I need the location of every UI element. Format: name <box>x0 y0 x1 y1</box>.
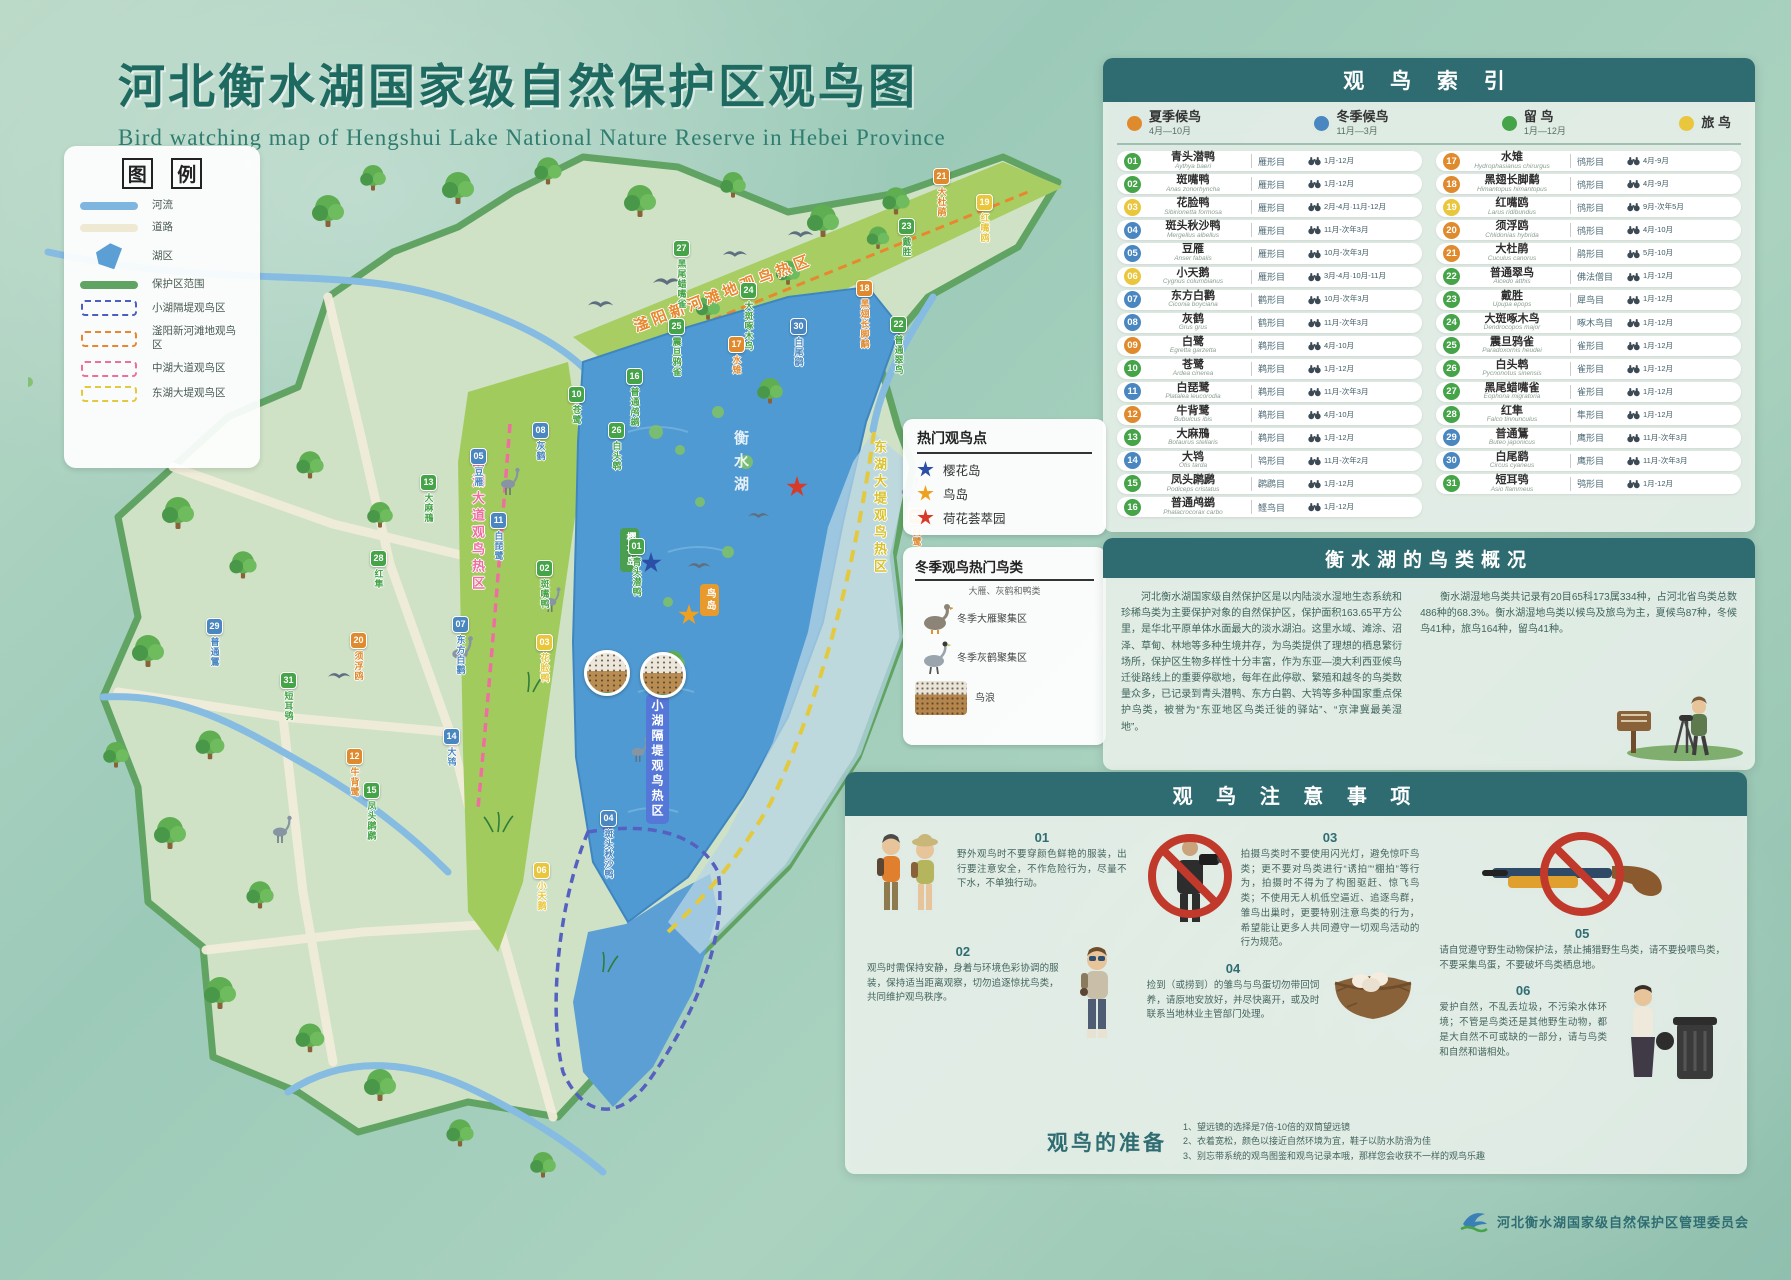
marker-number: 07 <box>452 616 469 633</box>
bird-months: 11月-次年3月 <box>1324 388 1368 396</box>
flock-photo-inset: 大雁 <box>584 650 630 696</box>
map-bird-marker: 15 凤头䴙䴘 <box>363 782 381 841</box>
binoculars-icon <box>1308 249 1321 259</box>
notes-column-1: 01 野外观鸟时不要穿颜色鲜艳的服装，出行要注意安全，不作危险行为，尽量不下水，… <box>867 830 1127 1112</box>
bird-months: 1月-12月 <box>1643 480 1673 488</box>
bird-order: 雁形目 <box>1258 270 1308 283</box>
bird-row: 29 普通鵟 Buteo japonicus 鹰形目 11月-次年3月 <box>1436 428 1741 448</box>
season-key-label: 旅 鸟 <box>1701 116 1731 130</box>
bird-number-badge: 18 <box>1443 176 1460 193</box>
bird-order: 䴙䴘目 <box>1258 477 1308 490</box>
marker-number: 18 <box>856 280 873 297</box>
binoculars-icon <box>1308 456 1321 466</box>
bird-latin: Alcedo atthis <box>1460 279 1564 286</box>
season-key: 冬季候鸟 11月—3月 <box>1314 110 1388 137</box>
bird-name: 短耳鸮 <box>1460 475 1564 487</box>
bird-months: 11月-次年3月 <box>1324 226 1368 234</box>
bird-order: 雁形目 <box>1258 247 1308 260</box>
season-key-dot <box>1127 116 1142 131</box>
bird-latin: Otis tarda <box>1141 463 1245 470</box>
map-bird-marker: 06 小天鹅 <box>533 862 551 911</box>
map-bird-marker: 31 短耳鸮 <box>280 672 298 721</box>
bird-order: 雀形目 <box>1577 362 1627 375</box>
legend-swatch <box>78 243 140 269</box>
marker-number: 26 <box>608 422 625 439</box>
marker-label: 红隼 <box>373 569 386 589</box>
legend-item-label: 中湖大道观鸟区 <box>152 362 226 375</box>
bird-latin: Grus grus <box>1141 325 1245 332</box>
bird-months: 1月-12月 <box>1643 365 1673 373</box>
legend-title-char: 例 <box>171 158 202 189</box>
overview-body: 河北衡水湖国家级自然保护区是以内陆淡水湿地生态系统和珍稀鸟类为主要保护对象的自然… <box>1103 578 1755 770</box>
litter-disposal-icon <box>1615 983 1725 1091</box>
marker-label: 戴胜 <box>901 237 914 257</box>
divider <box>1570 200 1571 214</box>
marker-number: 15 <box>363 782 380 799</box>
marker-label: 白琵鹭 <box>493 531 506 561</box>
marker-label: 小天鹅 <box>536 881 549 911</box>
bird-row: 18 黑翅长脚鹬 Himantopus himantopus 鸻形目 4月-9月 <box>1436 174 1741 194</box>
marker-label: 短耳鸮 <box>283 691 296 721</box>
legend-item: 道路 <box>78 221 246 234</box>
map-bird-marker: 23 戴胜 <box>898 218 916 257</box>
map-bird-marker: 04 斑头秋沙鸭 <box>600 810 618 879</box>
note-number: 05 <box>1439 926 1725 941</box>
bird-name-block: 斑头秋沙鸭 Mergellus albellus <box>1141 221 1245 239</box>
binoculars-icon <box>1627 318 1640 328</box>
map-bird-marker: 27 黑尾蜡嘴雀 <box>673 240 691 309</box>
bird-months: 1月-12月 <box>1324 180 1354 188</box>
bird-months: 1月-12月 <box>1643 388 1673 396</box>
bird-months: 9月-次年5月 <box>1643 203 1684 211</box>
bird-order: 雁形目 <box>1258 224 1308 237</box>
bird-row: 26 白头鹎 Pycnonotus sinensis 雀形目 1月-12月 <box>1436 359 1741 379</box>
org-logo <box>1459 1208 1489 1234</box>
bird-latin: Egretta garzetta <box>1141 348 1245 355</box>
binoculars-icon <box>1627 341 1640 351</box>
marker-label: 豆雁 <box>473 467 486 487</box>
bird-row: 05 豆雁 Anser fabalis 雁形目 10月-次年3月 <box>1117 243 1422 263</box>
winter-row: 冬季大雁聚集区 <box>915 603 1094 635</box>
divider <box>1570 362 1571 376</box>
bird-name-block: 红隼 Falco tinnunculus <box>1460 406 1564 424</box>
bird-latin: Paradoxornis heudei <box>1460 348 1564 355</box>
marker-label: 斑头秋沙鸭 <box>603 829 616 879</box>
bird-number-badge: 09 <box>1124 337 1141 354</box>
divider <box>1570 431 1571 445</box>
bird-row: 10 苍鹭 Ardea cinerea 鹈形目 1月-12月 <box>1117 359 1422 379</box>
bird-name-block: 白琵鹭 Platalea leucorodia <box>1141 383 1245 401</box>
hotspot-label: 樱花岛 <box>943 460 981 479</box>
bird-name-block: 青头潜鸭 Aythya baeri <box>1141 152 1245 170</box>
bird-order: 鸻形目 <box>1577 155 1627 168</box>
map-bird-marker: 30 白尾鹞 <box>790 318 808 367</box>
bird-row: 02 斑嘴鸭 Anas zonorhyncha 雁形目 1月-12月 <box>1117 174 1422 194</box>
winter-title: 冬季观鸟热门鸟类 <box>915 556 1094 581</box>
footer: 河北衡水湖国家级自然保护区管理委员会 <box>1459 1208 1749 1234</box>
poster: 河北衡水湖国家级自然保护区观鸟图 Bird watching map of He… <box>0 0 1791 1280</box>
note-item-06: 06 爱护自然，不乱丢垃圾，不污染水体环境；不管是鸟类还是其他野生动物，都是大自… <box>1439 983 1725 1091</box>
marker-label: 黑翅长脚鹬 <box>859 299 872 349</box>
bird-number-badge: 12 <box>1124 406 1141 423</box>
legend-item-label: 小湖隔堤观鸟区 <box>152 302 226 315</box>
bird-order: 鸮形目 <box>1577 477 1627 490</box>
note-number: 01 <box>957 830 1127 845</box>
note-item-02: 02 观鸟时需保持安静，身着与环境色彩协调的服装，保持适当距离观察，切勿追逐惊扰… <box>867 944 1127 1054</box>
bird-number-badge: 15 <box>1124 475 1141 492</box>
bird-months: 4月-9月 <box>1643 157 1669 165</box>
bird-name-block: 苍鹭 Ardea cinerea <box>1141 360 1245 378</box>
bird-name-block: 牛背鹭 Bubulcus ibis <box>1141 406 1245 424</box>
bird-order: 鹈形目 <box>1258 385 1308 398</box>
marker-label: 东方白鹳 <box>455 635 468 675</box>
bird-latin: Ardea cinerea <box>1141 371 1245 378</box>
birdwatcher-icon <box>1067 944 1127 1054</box>
marker-number: 02 <box>536 560 553 577</box>
bird-number-badge: 10 <box>1124 360 1141 377</box>
bird-latin: Cygnus columbianus <box>1141 279 1245 286</box>
divider <box>1570 408 1571 422</box>
page-title: 河北衡水湖国家级自然保护区观鸟图 <box>118 48 1018 117</box>
bird-number-badge: 02 <box>1124 176 1141 193</box>
map-bird-marker: 19 红嘴鸥 <box>976 194 994 243</box>
marker-label: 白尾鹞 <box>793 337 806 367</box>
season-key-dot <box>1314 116 1329 131</box>
bird-latin: Podiceps cristatus <box>1141 487 1245 494</box>
bird-latin: Eophona migratoria <box>1460 394 1564 401</box>
bird-number-badge: 20 <box>1443 222 1460 239</box>
bird-months: 4月-9月 <box>1643 180 1669 188</box>
bird-row: 25 震旦鸦雀 Paradoxornis heudei 雀形目 1月-12月 <box>1436 336 1741 356</box>
bird-months: 10月-次年3月 <box>1324 249 1369 257</box>
map-bird-marker: 05 豆雁 <box>470 448 488 487</box>
bird-number-badge: 31 <box>1443 475 1460 492</box>
bird-months: 11月-次年2月 <box>1324 457 1368 465</box>
note-number: 03 <box>1241 830 1420 845</box>
notes-column-3: 05 请自觉遵守野生动物保护法，禁止捕猎野生鸟类，请不要投喂鸟类，不要采集鸟蛋，… <box>1439 830 1725 1112</box>
divider <box>1251 385 1252 399</box>
notes-body: 01 野外观鸟时不要穿颜色鲜艳的服装，出行要注意安全，不作危险行为，尽量不下水，… <box>845 816 1747 1174</box>
bird-months: 1月-12月 <box>1643 411 1673 419</box>
bird-number-badge: 24 <box>1443 314 1460 331</box>
bird-row: 07 东方白鹳 Ciconia boyciana 鹳形目 10月-次年3月 <box>1117 290 1422 310</box>
divider <box>1570 223 1571 237</box>
marker-label: 牛背鹭 <box>349 767 362 797</box>
bird-row: 27 黑尾蜡嘴雀 Eophona migratoria 雀形目 1月-12月 <box>1436 382 1741 402</box>
winter-row: 冬季灰鹤聚集区 <box>915 641 1094 675</box>
bird-order: 佛法僧目 <box>1577 270 1627 283</box>
bird-months: 1月-12月 <box>1324 157 1354 165</box>
legend-swatch <box>78 361 140 377</box>
marker-label: 青头潜鸭 <box>631 557 644 597</box>
marker-number: 30 <box>790 318 807 335</box>
season-key: 旅 鸟 <box>1679 116 1731 131</box>
legend-item-label: 保护区范围 <box>152 278 205 291</box>
binoculars-icon <box>1308 225 1321 235</box>
marker-number: 11 <box>490 512 507 529</box>
bird-number-badge: 14 <box>1124 452 1141 469</box>
legend-item: 中湖大道观鸟区 <box>78 361 246 377</box>
binoculars-icon <box>1308 387 1321 397</box>
hotspot-row: 樱花岛 <box>917 460 1092 479</box>
bird-months: 2月-4月·11月-12月 <box>1324 203 1386 211</box>
marker-label: 普通鸬鹚 <box>629 387 642 427</box>
bird-number-badge: 30 <box>1443 452 1460 469</box>
marker-number: 04 <box>600 810 617 827</box>
bird-order: 鸻形目 <box>1577 224 1627 237</box>
bird-months: 1月-12月 <box>1324 434 1354 442</box>
prep-line: 3、别忘带系统的观鸟图鉴和观鸟记录本哦，那样您会收获不一样的观鸟乐趣 <box>1183 1149 1485 1163</box>
bird-row: 15 凤头䴙䴘 Podiceps cristatus 䴙䴘目 1月-12月 <box>1117 474 1422 494</box>
bird-row: 04 斑头秋沙鸭 Mergellus albellus 雁形目 11月-次年3月 <box>1117 220 1422 240</box>
bird-latin: Cuculus canorus <box>1460 256 1564 263</box>
prep-line: 1、望远镜的选择是7倍-10倍的双筒望远镜 <box>1183 1120 1485 1134</box>
bird-latin: Sibirionetta formosa <box>1141 210 1245 217</box>
bird-order: 鲣鸟目 <box>1258 501 1308 514</box>
bird-order: 雁形目 <box>1258 178 1308 191</box>
overview-panel: 衡水湖的鸟类概况 河北衡水湖国家级自然保护区是以内陆淡水湿地生态系统和珍稀鸟类为… <box>1103 538 1755 770</box>
org-name: 河北衡水湖国家级自然保护区管理委员会 <box>1497 1212 1749 1231</box>
map-bird-marker: 10 苍鹭 <box>568 386 586 425</box>
bird-name-block: 白头鹎 Pycnonotus sinensis <box>1460 360 1564 378</box>
bird-months: 11月-次年3月 <box>1643 434 1687 442</box>
bird-latin: Anas zonorhyncha <box>1141 187 1245 194</box>
bird-order: 鸻形目 <box>1577 201 1627 214</box>
divider <box>1251 293 1252 307</box>
bird-name-block: 大鸨 Otis tarda <box>1141 452 1245 470</box>
legend-box: 图 例 河流 道路 <box>64 146 260 468</box>
bird-latin: Buteo japonicus <box>1460 440 1564 447</box>
map-bird-marker: 26 白头鹎 <box>608 422 626 471</box>
map-bird-marker: 12 牛背鹭 <box>346 748 364 797</box>
bird-row: 16 普通鸬鹚 Phalacrocorax carbo 鲣鸟目 1月-12月 <box>1117 497 1422 517</box>
bird-months: 1月-12月 <box>1643 295 1673 303</box>
map-bird-marker: 14 大鸨 <box>443 728 461 767</box>
bird-name-block: 普通翠鸟 Alcedo atthis <box>1460 268 1564 286</box>
bird-row: 21 大杜鹃 Cuculus canorus 鹃形目 5月-10月 <box>1436 243 1741 263</box>
bird-number-badge: 01 <box>1124 153 1141 170</box>
bird-name-block: 普通鵟 Buteo japonicus <box>1460 429 1564 447</box>
bird-latin: Botaurus stellaris <box>1141 440 1245 447</box>
legend-title-char: 图 <box>122 158 153 189</box>
bird-months: 1月-12月 <box>1324 365 1354 373</box>
bird-latin: Falco tinnunculus <box>1460 417 1564 424</box>
legend-item-label: 道路 <box>152 221 173 234</box>
binoculars-icon <box>1308 295 1321 305</box>
legend-item: 小湖隔堤观鸟区 <box>78 300 246 316</box>
bird-name-block: 黑尾蜡嘴雀 Eophona migratoria <box>1460 383 1564 401</box>
marker-number: 28 <box>370 550 387 567</box>
divider <box>1251 177 1252 191</box>
bird-latin: Mergellus albellus <box>1141 233 1245 240</box>
note-text: 捡到（或捞到）的雏鸟与鸟蛋切勿带回饲养，请原地安放好，并尽快离开，或及时联系当地… <box>1147 979 1320 1023</box>
bird-months: 4月-10月 <box>1324 342 1354 350</box>
marker-number: 21 <box>933 168 950 185</box>
season-key-range: 11月—3月 <box>1336 124 1388 137</box>
season-key-label: 夏季候鸟 <box>1149 110 1201 124</box>
bird-latin: Asio flammeus <box>1460 487 1564 494</box>
bird-number-badge: 13 <box>1124 429 1141 446</box>
map-bird-marker: 21 大杜鹃 <box>933 168 951 217</box>
bird-latin: Platalea leucorodia <box>1141 394 1245 401</box>
marker-label: 大鸨 <box>446 747 459 767</box>
bird-name-block: 斑嘴鸭 Anas zonorhyncha <box>1141 175 1245 193</box>
marker-number: 13 <box>420 474 437 491</box>
binoculars-icon <box>1627 479 1640 489</box>
binoculars-icon <box>1627 272 1640 282</box>
bird-order: 鹈形目 <box>1258 339 1308 352</box>
hotspot-label: 荷花荟萃园 <box>943 508 1006 527</box>
bird-number-badge: 08 <box>1124 314 1141 331</box>
divider <box>1570 454 1571 468</box>
marker-number: 03 <box>536 634 553 651</box>
star-icon <box>917 461 934 478</box>
marker-number: 31 <box>280 672 297 689</box>
notes-title: 观 鸟 注 意 事 项 <box>845 772 1747 816</box>
bird-row: 12 牛背鹭 Bubulcus ibis 鹈形目 4月-10月 <box>1117 405 1422 425</box>
bird-latin: Chlidonias hybrida <box>1460 233 1564 240</box>
legend-item: 保护区范围 <box>78 278 246 291</box>
binoculars-icon <box>1308 318 1321 328</box>
marker-label: 花脸鸭 <box>539 653 552 683</box>
bird-name-block: 水雉 Hydrophasianus chirurgus <box>1460 152 1564 170</box>
bird-order: 犀鸟目 <box>1577 293 1627 306</box>
bird-number-badge: 25 <box>1443 337 1460 354</box>
divider <box>1251 316 1252 330</box>
marker-number: 14 <box>443 728 460 745</box>
map-bird-marker: 11 白琵鹭 <box>490 512 508 561</box>
note-text: 野外观鸟时不要穿颜色鲜艳的服装，出行要注意安全，不作危险行为，尽量不下水，不单独… <box>957 848 1127 892</box>
note-text: 观鸟时需保持安静，身着与环境色彩协调的服装，保持适当距离观察，切勿追逐惊扰鸟类，… <box>867 962 1059 1006</box>
bird-row: 17 水雉 Hydrophasianus chirurgus 鸻形目 4月-9月 <box>1436 151 1741 171</box>
winter-birds-panel: 冬季观鸟热门鸟类 大雁、灰鹤和鸭类 冬季大雁聚集区 <box>903 547 1106 745</box>
season-key-label: 留 鸟 <box>1524 110 1566 124</box>
bird-number-badge: 22 <box>1443 268 1460 285</box>
bird-name-block: 豆雁 Anser fabalis <box>1141 244 1245 262</box>
bird-name-block: 戴胜 Upupa epops <box>1460 291 1564 309</box>
divider <box>1570 339 1571 353</box>
map-bird-marker: 18 黑翅长脚鹬 <box>856 280 874 349</box>
divider <box>1251 223 1252 237</box>
bird-order: 雀形目 <box>1577 385 1627 398</box>
binoculars-icon <box>1308 410 1321 420</box>
binoculars-icon <box>1627 364 1640 374</box>
note-number: 02 <box>867 944 1059 959</box>
note-number: 06 <box>1439 983 1607 998</box>
bird-number-badge: 05 <box>1124 245 1141 262</box>
bird-months: 1月-12月 <box>1643 272 1673 280</box>
marker-label: 白头鹎 <box>611 441 624 471</box>
winter-label: 冬季灰鹤聚集区 <box>957 652 1027 665</box>
bird-order: 鹰形目 <box>1577 431 1627 444</box>
bird-months: 11月-次年3月 <box>1643 457 1687 465</box>
marker-number: 23 <box>898 218 915 235</box>
bird-latin: Bubulcus ibis <box>1141 417 1245 424</box>
legend-item: 湖区 <box>78 243 246 269</box>
map-bird-marker: 16 普通鸬鹚 <box>626 368 644 427</box>
bird-order: 鹳形目 <box>1258 293 1308 306</box>
bird-latin: Larus ridibundus <box>1460 210 1564 217</box>
bird-latin: Hydrophasianus chirurgus <box>1460 164 1564 171</box>
bird-name-block: 红嘴鸥 Larus ridibundus <box>1460 198 1564 216</box>
prep-line: 2、衣着宽松，颜色以接近自然环境为宜，鞋子以防水防滑为佳 <box>1183 1134 1485 1148</box>
binoculars-icon <box>1308 364 1321 374</box>
photographer-illustration <box>1595 677 1745 766</box>
divider <box>1251 154 1252 168</box>
bird-number-badge: 23 <box>1443 291 1460 308</box>
divider <box>1251 500 1252 514</box>
marker-label: 普通翠鸟 <box>893 335 906 375</box>
marker-label: 黑尾蜡嘴雀 <box>676 259 689 309</box>
map-bird-marker: 29 普通鵟 <box>206 618 224 667</box>
marker-number: 20 <box>350 632 367 649</box>
bird-row: 20 须浮鸥 Chlidonias hybrida 鸻形目 4月-10月 <box>1436 220 1741 240</box>
hotspot-label: 鸟岛 <box>943 484 968 503</box>
bird-row: 06 小天鹅 Cygnus columbianus 雁形目 3月-4月·10月-… <box>1117 267 1422 287</box>
bird-name-block: 凤头䴙䴘 Podiceps cristatus <box>1141 475 1245 493</box>
bird-order: 雁形目 <box>1258 201 1308 214</box>
marker-label: 红嘴鸥 <box>979 213 992 243</box>
bird-row: 01 青头潜鸭 Aythya baeri 雁形目 1月-12月 <box>1117 151 1422 171</box>
bird-latin: Aythya baeri <box>1141 164 1245 171</box>
marker-number: 17 <box>728 336 745 353</box>
index-title: 观 鸟 索 引 <box>1103 58 1755 102</box>
bird-order: 鹈形目 <box>1258 431 1308 444</box>
divider <box>1251 431 1252 445</box>
marker-label: 普通鵟 <box>209 637 222 667</box>
divider <box>1251 362 1252 376</box>
bird-row: 22 普通翠鸟 Alcedo atthis 佛法僧目 1月-12月 <box>1436 267 1741 287</box>
bird-months: 1月-12月 <box>1643 319 1673 327</box>
divider <box>1570 293 1571 307</box>
bird-latin: Pycnonotus sinensis <box>1460 371 1564 378</box>
marker-number: 27 <box>673 240 690 257</box>
island-label: 鸟岛 <box>700 584 719 616</box>
bird-name-block: 灰鹤 Grus grus <box>1141 314 1245 332</box>
bird-months: 11月-次年3月 <box>1324 319 1368 327</box>
marker-label: 震旦鸦雀 <box>671 337 684 377</box>
notes-panel: 观 鸟 注 意 事 项 01 <box>845 772 1747 1174</box>
bird-months: 4月-10月 <box>1324 411 1354 419</box>
bird-name: 凤头䴙䴘 <box>1141 475 1245 487</box>
bird-months: 1月-12月 <box>1324 480 1354 488</box>
winter-label: 鸟浪 <box>975 692 995 705</box>
map-bird-marker: 08 灰鹤 <box>532 422 550 461</box>
divider <box>1570 316 1571 330</box>
bird-wave-photo <box>915 681 967 715</box>
divider <box>1251 408 1252 422</box>
hikers-icon <box>867 830 949 934</box>
divider <box>1570 154 1571 168</box>
bird-number-badge: 06 <box>1124 268 1141 285</box>
flock-photo-inset: 灰鹤 <box>640 652 686 698</box>
bird-latin: Ciconia boyciana <box>1141 302 1245 309</box>
legend-item: 东湖大堤观鸟区 <box>78 386 246 402</box>
binoculars-icon <box>1308 341 1321 351</box>
marker-number: 12 <box>346 748 363 765</box>
map-bird-marker: 25 震旦鸦雀 <box>668 318 686 377</box>
legend-swatch <box>78 224 140 232</box>
bird-name-block: 短耳鸮 Asio flammeus <box>1460 475 1564 493</box>
bird-name: 普通鸬鹚 <box>1141 498 1245 510</box>
note-text: 请自觉遵守野生动物保护法，禁止捕猎野生鸟类，请不要投喂鸟类，不要采集鸟蛋，不要破… <box>1439 944 1725 973</box>
bird-name-block: 大斑啄木鸟 Dendrocopos major <box>1460 314 1564 332</box>
bird-order: 雀形目 <box>1577 339 1627 352</box>
divider <box>1251 454 1252 468</box>
note-item-01: 01 野外观鸟时不要穿颜色鲜艳的服装，出行要注意安全，不作危险行为，尽量不下水，… <box>867 830 1127 934</box>
bird-number-badge: 17 <box>1443 153 1460 170</box>
bird-row: 09 白鹭 Egretta garzetta 鹈形目 4月-10月 <box>1117 336 1422 356</box>
